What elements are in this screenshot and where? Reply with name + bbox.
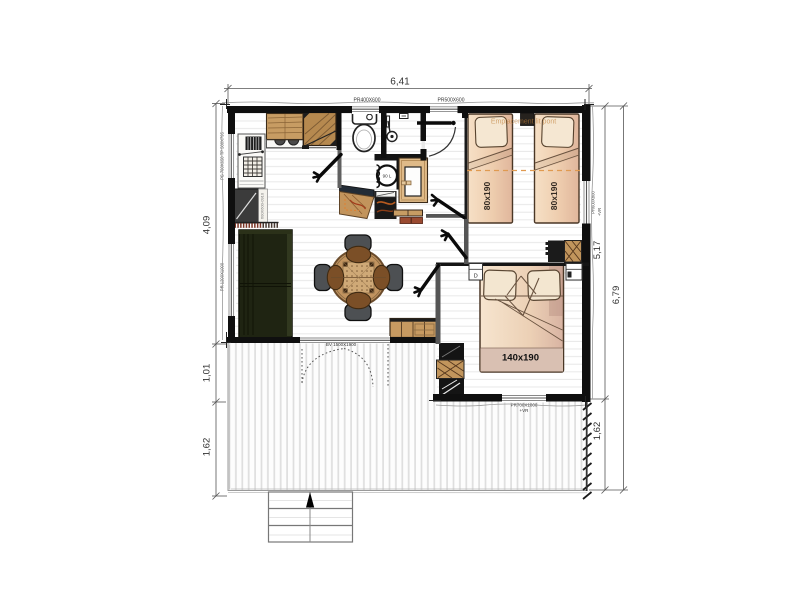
- svg-text:90 L: 90 L: [383, 174, 392, 179]
- svg-text:+VR: +VR: [597, 208, 602, 216]
- svg-text:140x190: 140x190: [502, 353, 539, 364]
- svg-text:+VR: +VR: [520, 408, 530, 413]
- svg-text:BV 1500X1900: BV 1500X1900: [326, 342, 357, 347]
- svg-text:600X600-0910: 600X600-0910: [260, 192, 265, 219]
- svg-text:PR 1200X1000: PR 1200X1000: [220, 262, 225, 291]
- svg-text:6,79: 6,79: [611, 286, 622, 305]
- svg-text:4,09: 4,09: [202, 216, 213, 235]
- svg-text:D: D: [474, 274, 478, 280]
- svg-text:Emplacement lit pont: Emplacement lit pont: [491, 119, 556, 126]
- svg-text:80x190: 80x190: [549, 182, 559, 211]
- svg-text:80x190: 80x190: [482, 182, 492, 211]
- svg-text:1,01: 1,01: [202, 364, 213, 383]
- svg-text:5,17: 5,17: [592, 241, 603, 260]
- svg-text:PR400X600: PR400X600: [354, 98, 381, 104]
- svg-text:1,62: 1,62: [592, 422, 603, 441]
- svg-text:1,62: 1,62: [202, 438, 213, 457]
- svg-text:6,41: 6,41: [390, 77, 410, 88]
